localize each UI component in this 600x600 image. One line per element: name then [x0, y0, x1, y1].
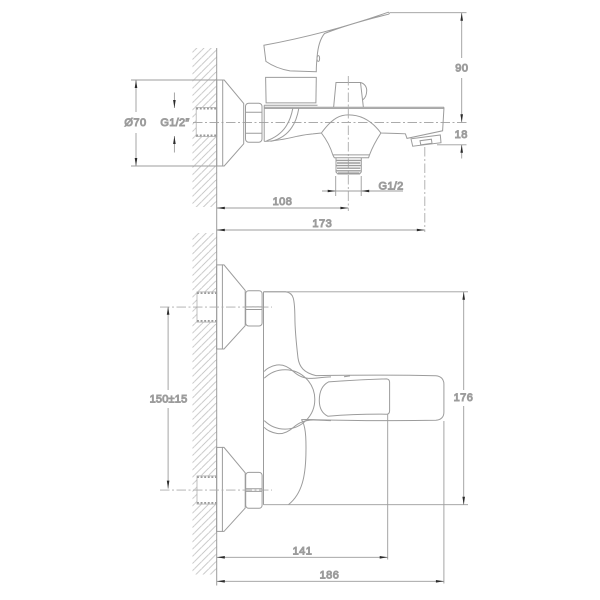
svg-text:G1/2: G1/2 — [378, 181, 403, 193]
svg-text:173: 173 — [312, 218, 332, 230]
svg-text:150±15: 150±15 — [150, 394, 188, 406]
svg-text:141: 141 — [293, 546, 313, 558]
svg-text:G1/2″: G1/2″ — [160, 117, 189, 129]
svg-text:186: 186 — [320, 570, 340, 582]
svg-text:176: 176 — [454, 392, 474, 404]
svg-text:18: 18 — [455, 129, 468, 141]
svg-text:108: 108 — [273, 196, 293, 208]
svg-text:Ø70: Ø70 — [124, 117, 146, 129]
svg-text:90: 90 — [455, 63, 468, 75]
